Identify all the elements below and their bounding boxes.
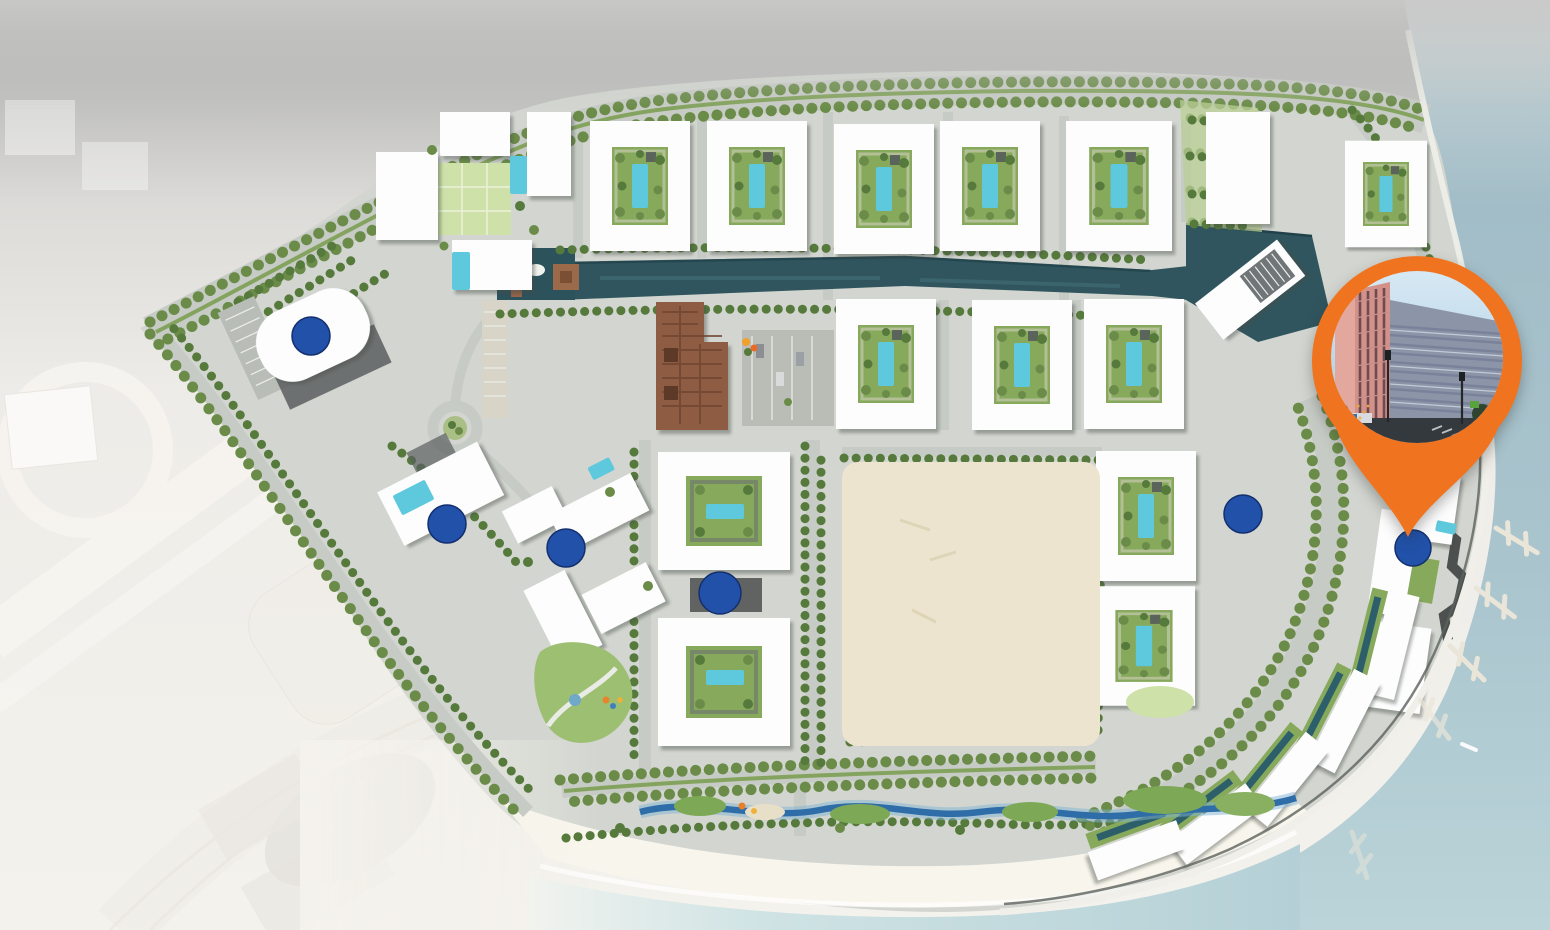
site-plan-map — [0, 0, 1550, 930]
courtyard-block — [590, 121, 690, 251]
central-square-south — [658, 618, 790, 746]
central-square-north — [658, 452, 790, 570]
courtyard-block — [940, 121, 1040, 251]
courtyard-block — [707, 121, 807, 251]
lawn-oval — [1126, 686, 1194, 718]
courtyard-block — [1084, 299, 1184, 429]
courtyard-block — [834, 124, 934, 254]
courtyard-block — [1066, 121, 1172, 251]
map-canvas — [0, 0, 1550, 930]
beach-fade — [300, 740, 600, 930]
block-near-marina — [1206, 112, 1270, 224]
courtyard-block — [836, 299, 936, 429]
courtyard-block — [1093, 586, 1195, 706]
parking-lot-central — [742, 330, 834, 426]
courtyard-block — [1345, 141, 1427, 248]
top-fog-fade — [0, 0, 1550, 110]
courtyard-block — [1096, 451, 1196, 581]
courtyard-block — [972, 300, 1072, 430]
open-sand-lot — [842, 462, 1100, 746]
